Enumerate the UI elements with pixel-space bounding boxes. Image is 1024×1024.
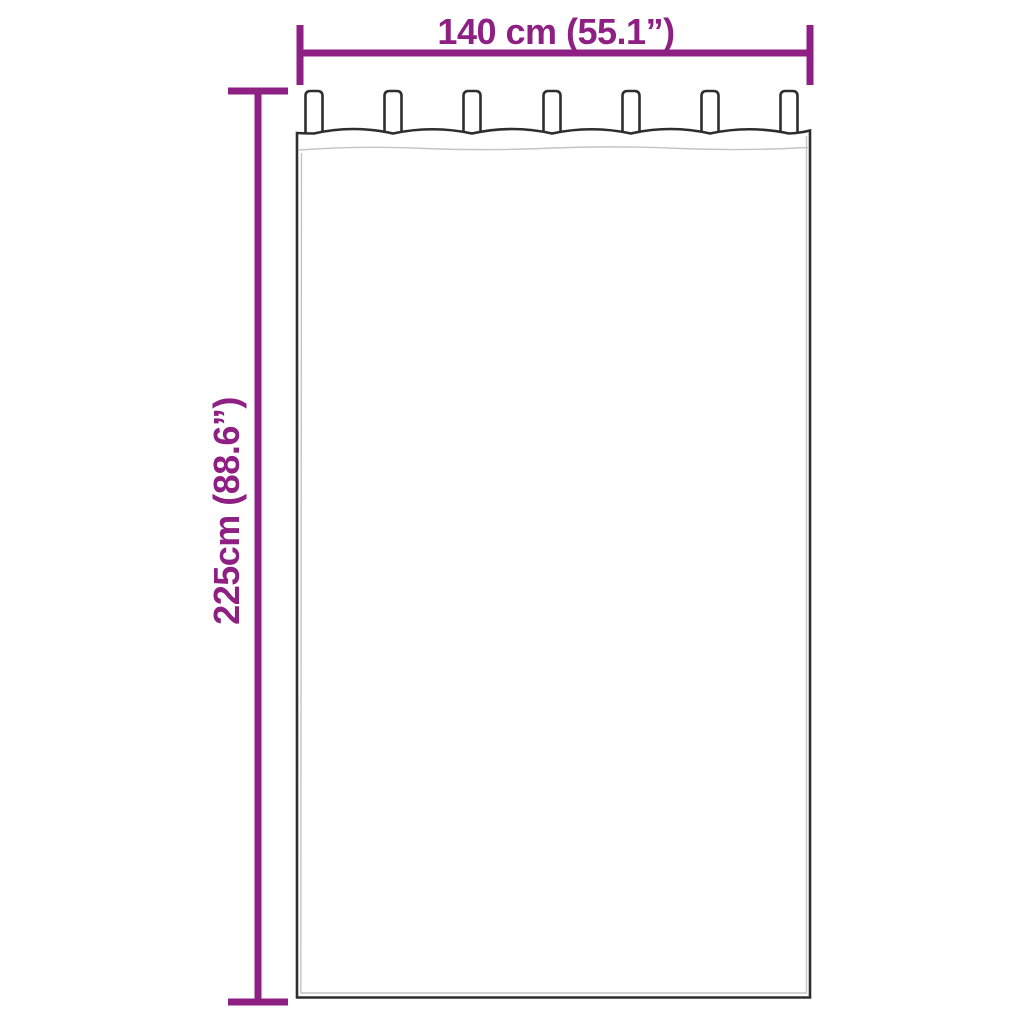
curtain-tab (306, 91, 323, 135)
width-dimension: 140 cm (55.1”) (300, 11, 810, 85)
curtain-tab (781, 91, 798, 135)
curtain-tab (544, 91, 561, 135)
curtain-tab (623, 91, 640, 135)
curtain-tab (385, 91, 402, 135)
curtain-tabs (306, 91, 798, 135)
width-dimension-label: 140 cm (55.1”) (437, 11, 674, 52)
height-dimension-label: 225cm (88.6”) (206, 397, 247, 625)
diagram-canvas: 140 cm (55.1”) 225cm (88.6”) (0, 0, 1024, 1024)
product-dimension-diagram: 140 cm (55.1”) 225cm (88.6”) (0, 0, 1024, 1024)
curtain-tab (702, 91, 719, 135)
curtain-tab (464, 91, 481, 135)
curtain-drawing (297, 91, 810, 998)
height-dimension: 225cm (88.6”) (206, 91, 288, 1002)
curtain-panel (297, 129, 810, 998)
